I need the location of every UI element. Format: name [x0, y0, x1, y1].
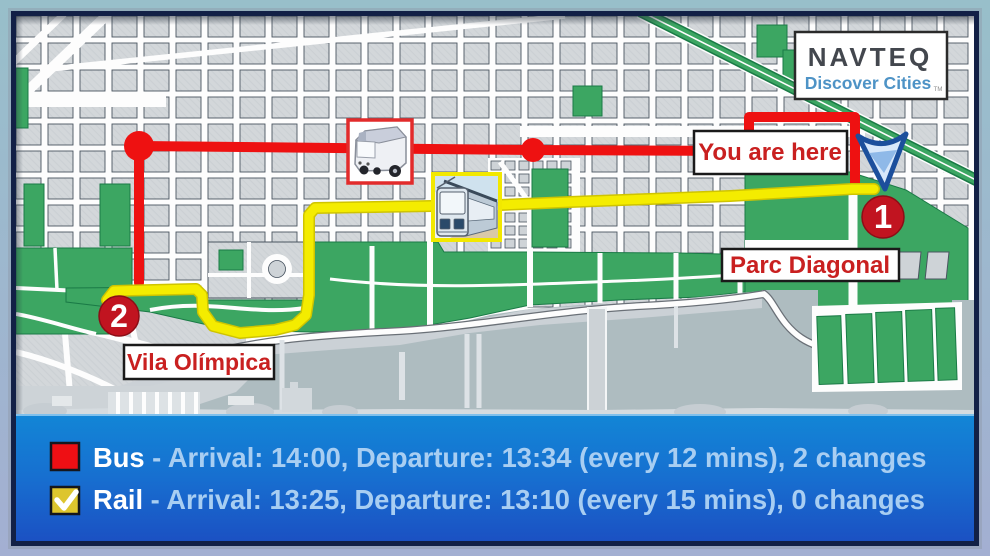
- svg-text:You are here: You are here: [698, 139, 842, 166]
- svg-text:Vila Olímpica: Vila Olímpica: [127, 349, 271, 375]
- svg-text:Parc Diagonal: Parc Diagonal: [730, 252, 890, 279]
- svg-text:Discover Cities: Discover Cities: [805, 73, 932, 93]
- svg-text:Bus - Arrival: 14:00, Departur: Bus - Arrival: 14:00, Departure: 13:34 (…: [93, 442, 926, 473]
- svg-text:Rail - Arrival: 13:25, Departu: Rail - Arrival: 13:25, Departure: 13:10 …: [93, 484, 925, 515]
- svg-text:2: 2: [110, 298, 128, 334]
- svg-text:NAVTEQ: NAVTEQ: [808, 42, 932, 72]
- svg-text:1: 1: [874, 198, 892, 235]
- svg-text:TM: TM: [934, 87, 943, 93]
